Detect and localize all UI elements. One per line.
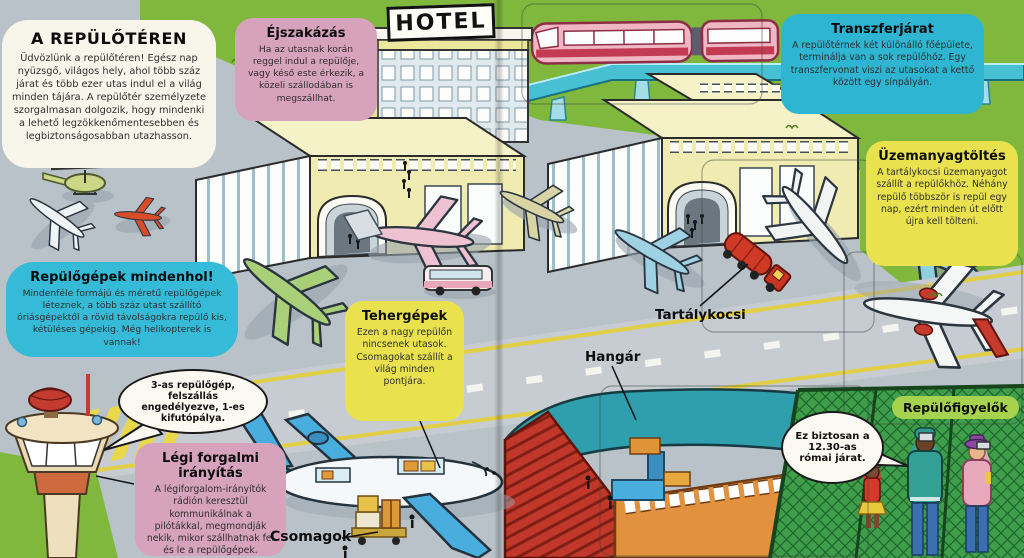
callout-transzferjarat: Transzferjárat A repülőtérnek két különá…: [781, 14, 984, 114]
callout-body: Mindenféle formájú és méretű repülőgépek…: [15, 288, 229, 349]
page-crease: [494, 0, 504, 558]
binoculars-icon: [977, 442, 990, 449]
label-hangar: Hangár: [585, 349, 640, 365]
callout-ejszakazas: Éjszakázás Ha az utasnak korán reggel in…: [235, 18, 377, 121]
callout-body: A tartálykocsi üzemanyagot szállít a rep…: [875, 167, 1009, 228]
tower-speech-bubble: 3-as repülőgép, felszállás engedélyezve,…: [118, 369, 268, 434]
callout-body: Ezen a nagy repülőn nincsenek utasok. Cs…: [354, 327, 455, 388]
callout-legi-forgalmi-iranyitas: Légi forgalmi irányítás A légiforgalom-i…: [135, 443, 286, 556]
callout-body: A repülőtérnek két különálló főépülete, …: [790, 40, 975, 89]
callout-title: Éjszakázás: [244, 26, 368, 41]
callout-title: Repülőgépek mindenhol!: [15, 270, 229, 285]
callout-body: A légiforgalom-irányítók rádión keresztü…: [144, 484, 277, 558]
callout-title: Transzferjárat: [790, 22, 975, 37]
binoculars-icon: [919, 433, 933, 441]
callout-title: Légi forgalmi irányítás: [144, 451, 277, 481]
label-csomagok: Csomagok: [270, 529, 351, 545]
intro-callout: A REPÜLŐTÉREN Üdvözlünk a repülőtéren! E…: [2, 20, 216, 168]
label-tartalykocsi: Tartálykocsi: [655, 307, 746, 323]
callout-uzemanyagtoltes: Üzemanyagtöltés A tartálykocsi üzemanyag…: [866, 141, 1018, 266]
spotter-speech-bubble: Ez biztosan a 12.30-as római járat.: [781, 411, 884, 484]
intro-text: Üdvözlünk a repülőtéren! Egész nap nyüzs…: [10, 53, 208, 143]
book-page: A REPÜLŐTÉREN Üdvözlünk a repülőtéren! E…: [0, 0, 1024, 558]
callout-repulogepek-mindenhol: Repülőgépek mindenhol! Mindenféle formáj…: [6, 262, 238, 357]
hotel-sign: HOTEL: [386, 3, 495, 42]
callout-body: Ha az utasnak korán reggel indul a repül…: [244, 44, 368, 105]
monorail-train: [532, 20, 779, 63]
label-repulofigyelok: Repülőfigyelők: [892, 396, 1019, 419]
tower-column: [44, 492, 80, 558]
callout-tehergepek: Tehergépek Ezen a nagy repülőn nincsenek…: [345, 301, 464, 421]
callout-title: Tehergépek: [354, 309, 455, 324]
callout-title: Üzemanyagtöltés: [875, 149, 1009, 164]
page-title: A REPÜLŐTÉREN: [10, 29, 208, 48]
